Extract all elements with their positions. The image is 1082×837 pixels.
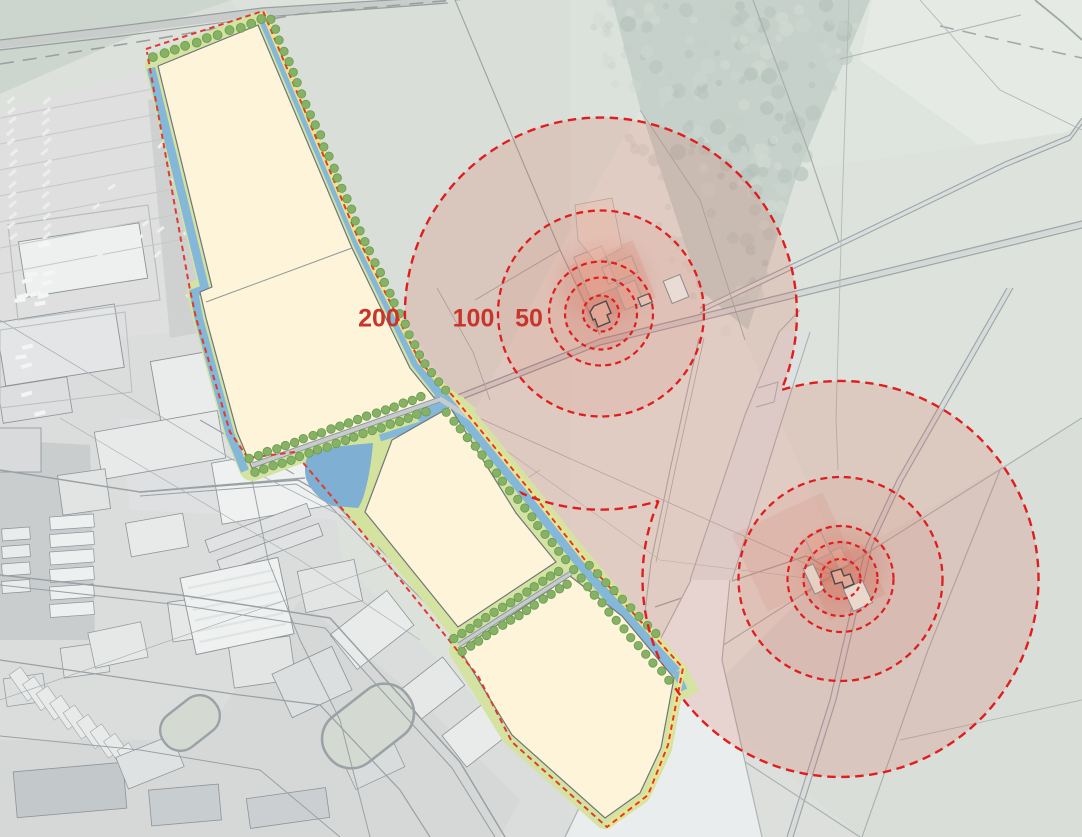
- svg-text:50: 50: [515, 305, 543, 333]
- svg-text:200: 200: [358, 305, 400, 333]
- svg-text:100: 100: [453, 305, 495, 333]
